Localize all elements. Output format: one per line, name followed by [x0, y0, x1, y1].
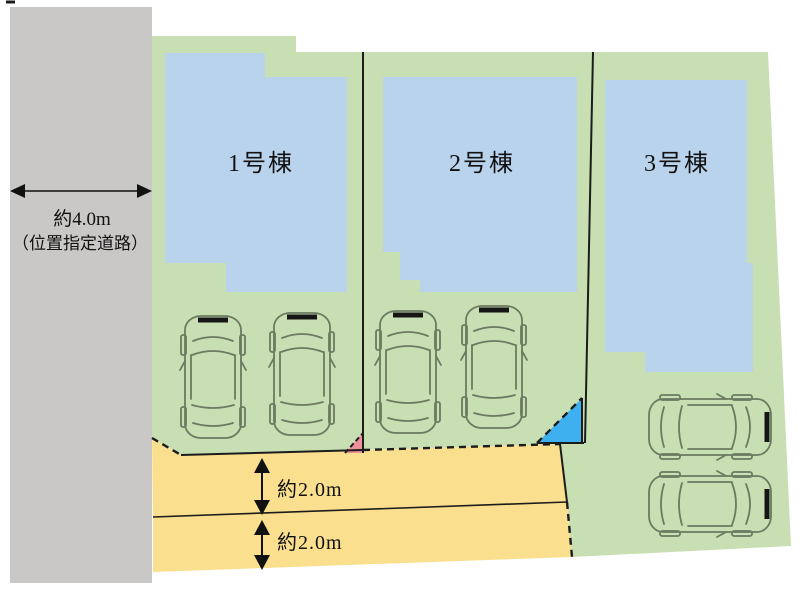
upper-road-width-label: 約2.0m — [277, 478, 343, 501]
site-plan-drawing: 1号棟 2号棟 3号棟 約4.0m （位置指定道路） 約2.0m 約2.0m — [0, 0, 800, 600]
site-plan-page: 1号棟 2号棟 3号棟 約4.0m （位置指定道路） 約2.0m 約2.0m — [0, 0, 800, 600]
left-road-type-label: （位置指定道路） — [12, 234, 148, 253]
building-1-label: 1号棟 — [228, 150, 294, 177]
building-2-footprint — [383, 77, 577, 292]
left-road-width-label: 約4.0m — [53, 208, 111, 230]
building-3-footprint — [605, 80, 753, 372]
lower-road-width-label: 約2.0m — [277, 531, 343, 554]
left-road-area — [10, 7, 152, 583]
building-2-label: 2号棟 — [449, 150, 515, 177]
building-3-label: 3号棟 — [644, 150, 710, 177]
